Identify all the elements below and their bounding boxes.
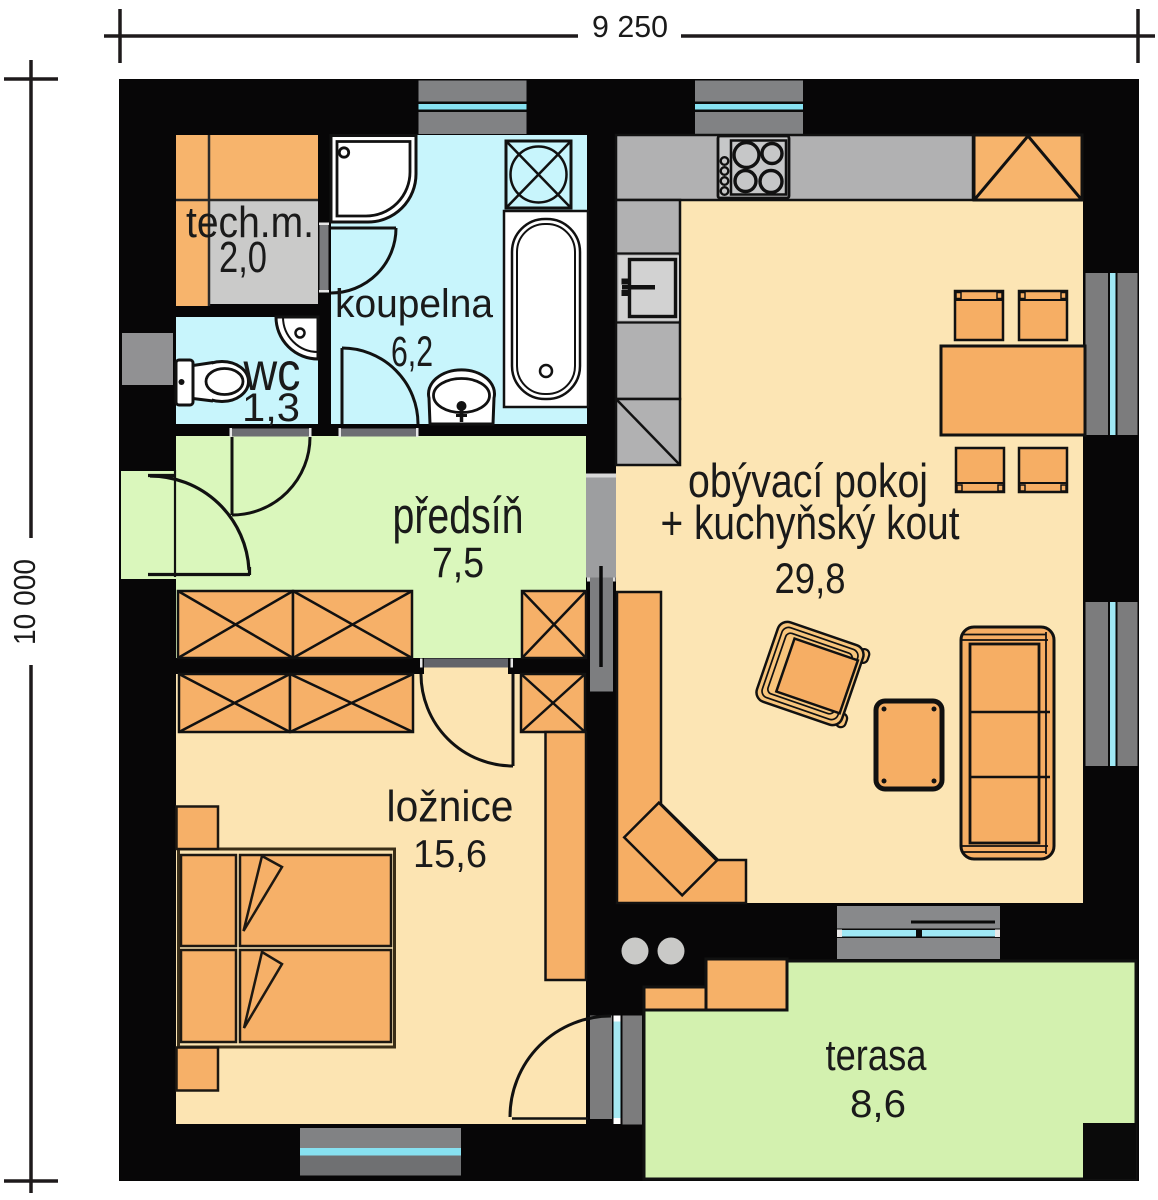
- svg-text:7,5: 7,5: [432, 539, 484, 587]
- svg-text:6,2: 6,2: [391, 328, 433, 376]
- svg-text:10 000: 10 000: [7, 559, 42, 645]
- svg-text:+ kuchyňský kout: + kuchyňský kout: [661, 496, 960, 549]
- svg-text:8,6: 8,6: [850, 1083, 906, 1126]
- svg-text:terasa: terasa: [826, 1031, 927, 1080]
- svg-text:ložnice: ložnice: [387, 782, 514, 831]
- svg-text:1,3: 1,3: [242, 386, 300, 430]
- svg-text:předsíň: předsíň: [393, 487, 524, 544]
- svg-text:15,6: 15,6: [413, 833, 487, 876]
- svg-text:koupelna: koupelna: [335, 282, 494, 326]
- svg-text:9 250: 9 250: [592, 9, 668, 44]
- svg-text:2,0: 2,0: [219, 233, 267, 282]
- svg-text:29,8: 29,8: [775, 555, 846, 603]
